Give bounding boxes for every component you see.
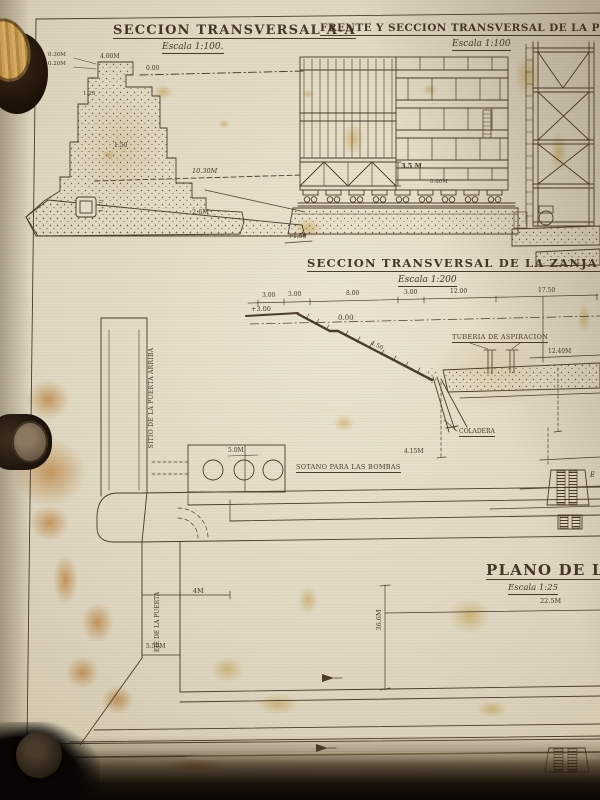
dim-zanja-1: 3.00 xyxy=(262,293,275,299)
dim-aa-top: 4.00M xyxy=(100,54,120,60)
dim-zanja-depth: 4.15M xyxy=(404,449,424,455)
dim-gate-height: 3.5 M xyxy=(401,163,422,170)
dim-gate-roller: 0.60M xyxy=(430,180,448,186)
title-frente-puerta: FRENTE Y SECCION TRANSVERSAL DE LA PUERT… xyxy=(320,23,600,36)
drawing-linework xyxy=(0,0,600,800)
dim-aa-base-length: 10.30M xyxy=(192,168,217,175)
label-coladera: COLADERA xyxy=(459,429,495,437)
wood-knob-bottom-left xyxy=(16,732,62,778)
dim-zanja-3: 8.00 xyxy=(346,291,359,297)
gate-truss-section xyxy=(512,42,600,266)
dim-aa-culvert: 1.10 xyxy=(99,200,105,212)
scale-plano: Escala 1:25 xyxy=(508,584,558,595)
dim-zanja-waterline: 0.00 xyxy=(338,315,354,322)
dim-aa-step1: 1.25 xyxy=(83,92,95,98)
dim-plan-length: 36.6M xyxy=(376,609,383,630)
dim-zanja-ground: +3.00 xyxy=(251,306,271,313)
dim-aa-top2: 0.30M xyxy=(48,53,66,59)
label-sitio-puerta-arriba: SITIO DE LA PUERTA ARRIBA xyxy=(149,348,155,449)
dim-aa-waterline: 0.00 xyxy=(146,66,159,72)
photograph-of-blueprint: SECCION TRANSVERSAL A-A Escala 1:100. FR… xyxy=(0,0,600,800)
dim-channel-depth: 4M xyxy=(193,588,204,595)
label-tuberia-aspiracion: TUBERIA DE ASPIRACION xyxy=(452,334,548,343)
dim-zanja-6: 17.50 xyxy=(538,288,555,294)
scale-zanja: Escala 1:200 xyxy=(398,276,457,287)
title-plano: PLANO DE LA CA xyxy=(486,563,600,580)
gate-elevation xyxy=(288,57,518,234)
label-sotano-bombas: SOTANO PARA LAS BOMBAS xyxy=(296,464,401,473)
dim-zanja-5: 12.00 xyxy=(450,289,467,295)
dim-plano-sub: 22.5M xyxy=(540,598,561,605)
trench-section xyxy=(246,241,600,458)
dim-zanja-4: 3.00 xyxy=(404,290,417,296)
dim-aa-step2: 1.50 xyxy=(114,143,127,149)
dim-zanja-2: 3.00 xyxy=(288,292,301,298)
dim-channel-width: 5.50M xyxy=(146,644,166,650)
scale-seccion-aa: Escala 1:100. xyxy=(162,43,224,54)
dim-aa-top3: 0.20M xyxy=(48,62,66,68)
dim-aa-base-height: 2.6M xyxy=(192,209,209,216)
section-aa-wall xyxy=(26,58,305,236)
dim-sump-width: 5.0M xyxy=(228,448,244,454)
label-edge-fragment: E xyxy=(590,472,595,479)
scale-frente: Escala 1:100 xyxy=(452,40,511,51)
title-zanja-fundacion: SECCION TRANSVERSAL DE LA ZANJA DE FUNDA… xyxy=(307,258,600,272)
dim-zanja-datum: +1.50 xyxy=(288,234,306,240)
dim-zanja-right: 12.40M xyxy=(548,349,571,355)
